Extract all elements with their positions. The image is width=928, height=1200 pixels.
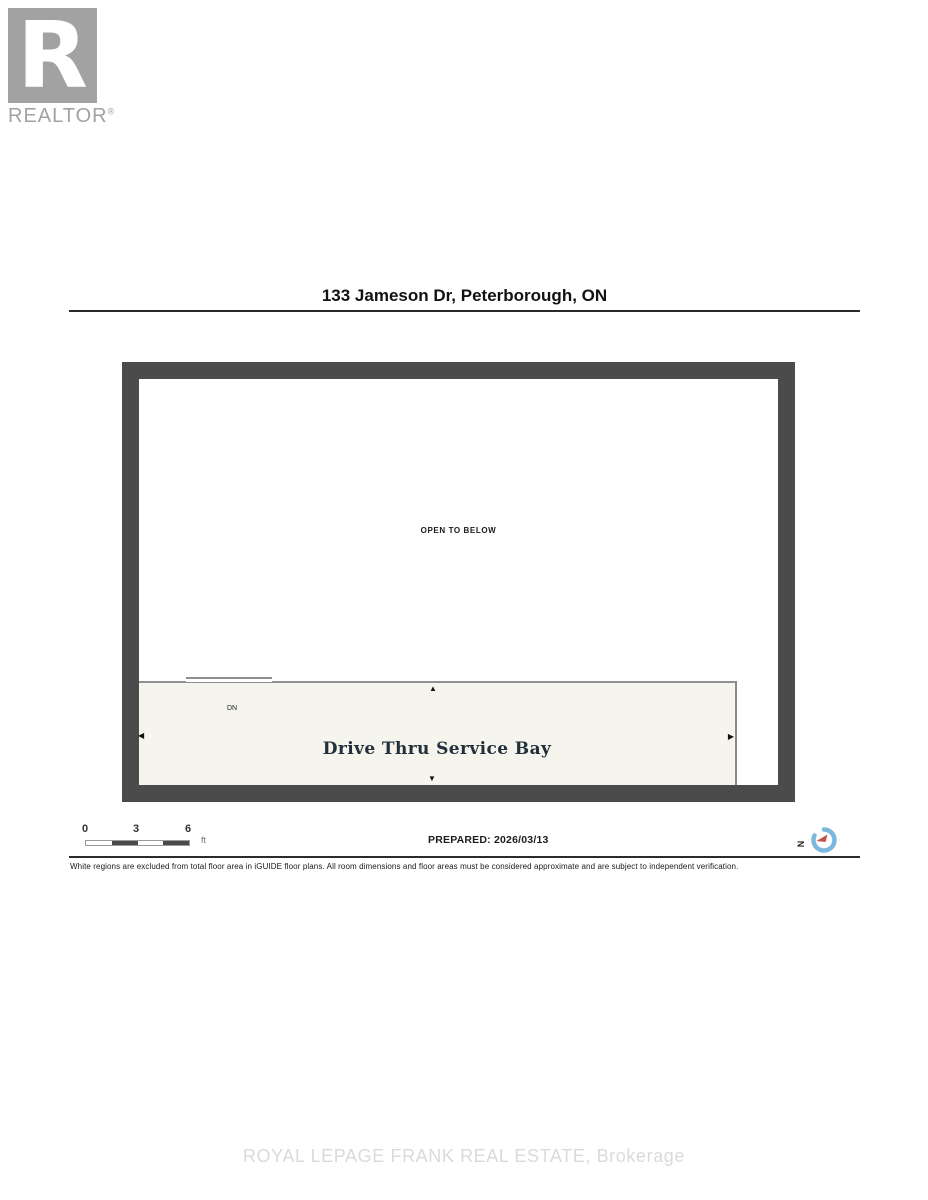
scale-segment bbox=[163, 841, 189, 845]
prepared-date-label: PREPARED: 2026/03/13 bbox=[428, 834, 549, 846]
compass: N bbox=[797, 826, 841, 858]
dimension-arrow-left-icon: ◀ bbox=[138, 732, 144, 740]
realtor-logo-icon: R bbox=[8, 8, 97, 103]
page-title: 133 Jameson Dr, Peterborough, ON bbox=[69, 286, 860, 306]
scale-segment bbox=[112, 841, 138, 845]
realtor-wordmark-text: REALTOR bbox=[8, 105, 108, 127]
brokerage-watermark: ROYAL LEPAGE FRANK REAL ESTATE, Brokerag… bbox=[0, 1146, 928, 1167]
scale-bar: 0 3 6 ft bbox=[85, 823, 190, 846]
realtor-wordmark: REALTOR® bbox=[8, 105, 115, 128]
dimension-arrow-up-icon: ▲ bbox=[429, 685, 437, 693]
drive-thru-service-bay-room: Drive Thru Service Bay DN ▲ ▼ ◀ ▶ bbox=[139, 681, 737, 785]
scale-unit-label: ft bbox=[201, 835, 206, 845]
dimension-arrow-right-icon: ▶ bbox=[728, 733, 734, 741]
scale-tick-labels: 0 3 6 bbox=[85, 823, 190, 837]
stairs-down-label: DN bbox=[227, 705, 237, 712]
footer-divider-line bbox=[69, 856, 860, 858]
scale-tick-3: 3 bbox=[133, 823, 139, 835]
scale-segment bbox=[86, 841, 112, 845]
registered-trademark-symbol: ® bbox=[108, 106, 116, 116]
realtor-logo: R REALTOR® bbox=[8, 8, 115, 128]
scale-tick-0: 0 bbox=[82, 823, 88, 835]
title-divider-line bbox=[69, 310, 860, 312]
open-to-below-label: OPEN TO BELOW bbox=[139, 526, 778, 535]
document-page: R REALTOR® 133 Jameson Dr, Peterborough,… bbox=[0, 0, 928, 1200]
scale-tick-6: 6 bbox=[185, 823, 191, 835]
scale-bar-segments bbox=[85, 840, 190, 846]
wall-notch bbox=[186, 677, 272, 682]
scale-segment bbox=[138, 841, 164, 845]
disclaimer-text: White regions are excluded from total fl… bbox=[70, 862, 890, 871]
dimension-arrow-down-icon: ▼ bbox=[428, 775, 436, 783]
realtor-r-glyph: R bbox=[17, 8, 88, 103]
north-letter: N bbox=[795, 841, 805, 848]
floor-plan: OPEN TO BELOW Drive Thru Service Bay DN … bbox=[122, 362, 795, 802]
room-label: Drive Thru Service Bay bbox=[139, 739, 735, 759]
compass-rose-icon bbox=[809, 826, 839, 859]
